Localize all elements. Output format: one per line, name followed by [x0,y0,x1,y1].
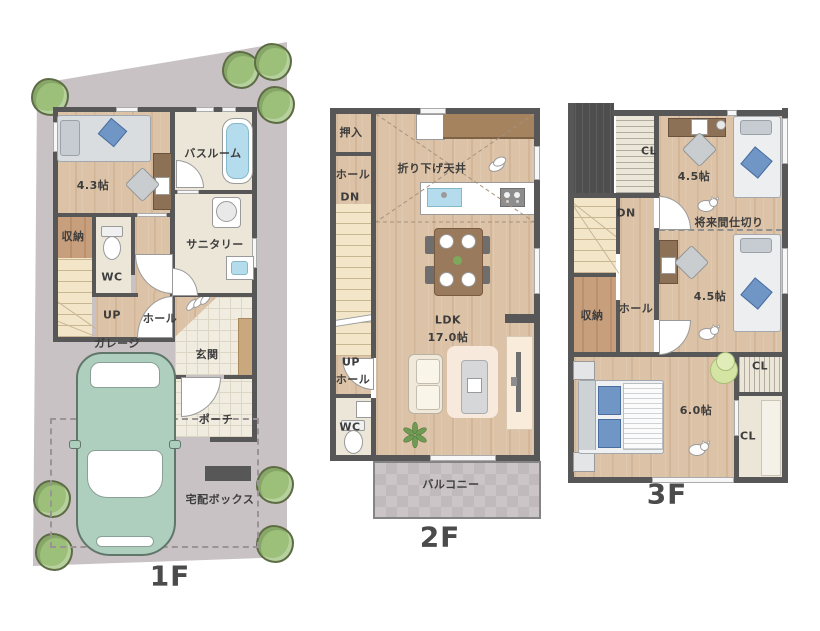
room-label-bedroom-size: 4.3帖 [77,177,110,193]
room-label-hall-2f: ホール [336,166,371,182]
room-label-room-a-size: 4.5帖 [678,168,711,184]
bed-pillow [60,120,80,156]
window [420,108,446,114]
wall [371,398,376,455]
wall [568,352,788,357]
cat-icon [698,324,720,340]
sofa-cushion [416,385,440,410]
room-label-storage-3f: 収納 [581,307,604,323]
nightstand [573,452,595,472]
door-opening [177,190,199,194]
room-label-storage: 収納 [62,228,85,244]
cat-icon [688,440,710,456]
wall [782,108,788,483]
tree-icon [257,86,295,124]
room-label-hall-3f: ホール [619,300,654,316]
nightstand [573,361,595,380]
room-label-entrance: 玄関 [196,346,219,362]
wc-sink [356,401,372,418]
room-label-cl-upper-right: CL [752,360,768,373]
room-label-up-2f: UP [342,356,360,369]
room-label-balcony: バルコニー [422,476,479,492]
wall [336,152,371,156]
room-label-up: UP [103,309,121,322]
room-label-ldk-size: 17.0帖 [428,329,469,345]
wall [568,273,616,277]
tree-icon [256,525,294,563]
tv-mount [511,377,517,386]
wall [568,103,574,483]
open-book [661,257,676,274]
wall [568,193,660,198]
car-mirror [169,440,181,449]
room-label-delivery-box: 宅配ボックス [186,491,255,507]
wall [131,217,135,275]
wall [371,108,376,358]
room-label-porch: ポーチ [199,411,234,427]
bed-pillow [598,386,621,415]
room-label-sanitary: サニタリー [186,236,244,252]
wall [92,213,96,297]
void-area-3f [568,103,614,195]
plate [461,234,476,249]
toilet-bowl [344,430,363,454]
closet-opening [734,400,739,436]
bed-pillow [598,419,621,448]
room-label-garage: ガレージ [94,335,140,351]
stairs-2f [336,204,371,356]
window [196,107,214,112]
window [782,118,788,164]
hall-3f [620,198,654,352]
car-bumper [96,536,154,547]
bed-pillow [740,238,772,253]
cat-icon [697,196,719,212]
room-label-wc-2f: WC [339,421,360,434]
washer-drum [216,201,237,222]
car-mirror [69,440,81,449]
low-table-tray [467,378,482,393]
bed-pillow [740,120,772,135]
room-label-oshiire: 押入 [340,124,363,140]
room-label-lowered-ceiling: 折り下げ天井 [398,160,467,176]
room-label-room-b-size: 4.5帖 [694,288,727,304]
double-bed [578,380,664,454]
sofa-cushion [416,359,440,384]
floor-label-3f: 3F [647,478,688,511]
tree-icon [254,43,292,81]
window [116,107,138,112]
wall [734,392,788,396]
car-windshield [87,450,163,498]
plate [439,234,454,249]
delivery-box [205,466,251,481]
plant-icon [402,422,428,448]
room-label-bathroom: バスルーム [184,145,241,161]
desk-lamp [716,120,726,130]
stairs-1f [56,258,92,337]
floor-label-2f: 2F [420,521,461,554]
room-label-dn-3f: DN [616,207,635,220]
stool-cushion [716,352,735,371]
car-rear-window [90,362,160,388]
door-opening [137,213,167,217]
toilet-bowl [103,236,121,260]
wall [330,108,336,461]
floorplan-canvas: 4.3帖 バスルーム 収納 サニタリー WC UP ホール ガレージ 玄関 ポー… [0,0,820,631]
room-label-hall: ホール [143,310,178,326]
window [534,248,540,294]
room-label-future-partition: 将来間仕切り [695,214,764,230]
room-label-dn-2f: DN [340,191,359,204]
sofa [408,354,443,414]
tree-icon [256,466,294,504]
room-label-ldk: LDK [435,314,461,327]
room-label-bedroom-6jo: 6.0帖 [680,402,713,418]
bed-blanket [623,383,663,450]
floor-label-1f: 1F [150,560,191,593]
bed-headboard [579,381,596,450]
room-label-cl-top: CL [641,145,657,158]
plate [439,272,454,287]
hanger-rail [761,400,781,476]
room-label-up-hall-2f: ホール [336,371,371,387]
wall [336,394,371,398]
wall [92,293,138,297]
table-centerpiece [453,256,462,265]
window [782,248,788,294]
window [534,146,540,180]
wall-stub [505,314,537,323]
room-label-cl-lower-right: CL [740,430,756,443]
window [222,107,236,112]
vanity-basin [231,261,248,275]
car [76,352,176,556]
plate [461,272,476,287]
wall [224,375,257,379]
room-label-wc: WC [101,271,122,284]
